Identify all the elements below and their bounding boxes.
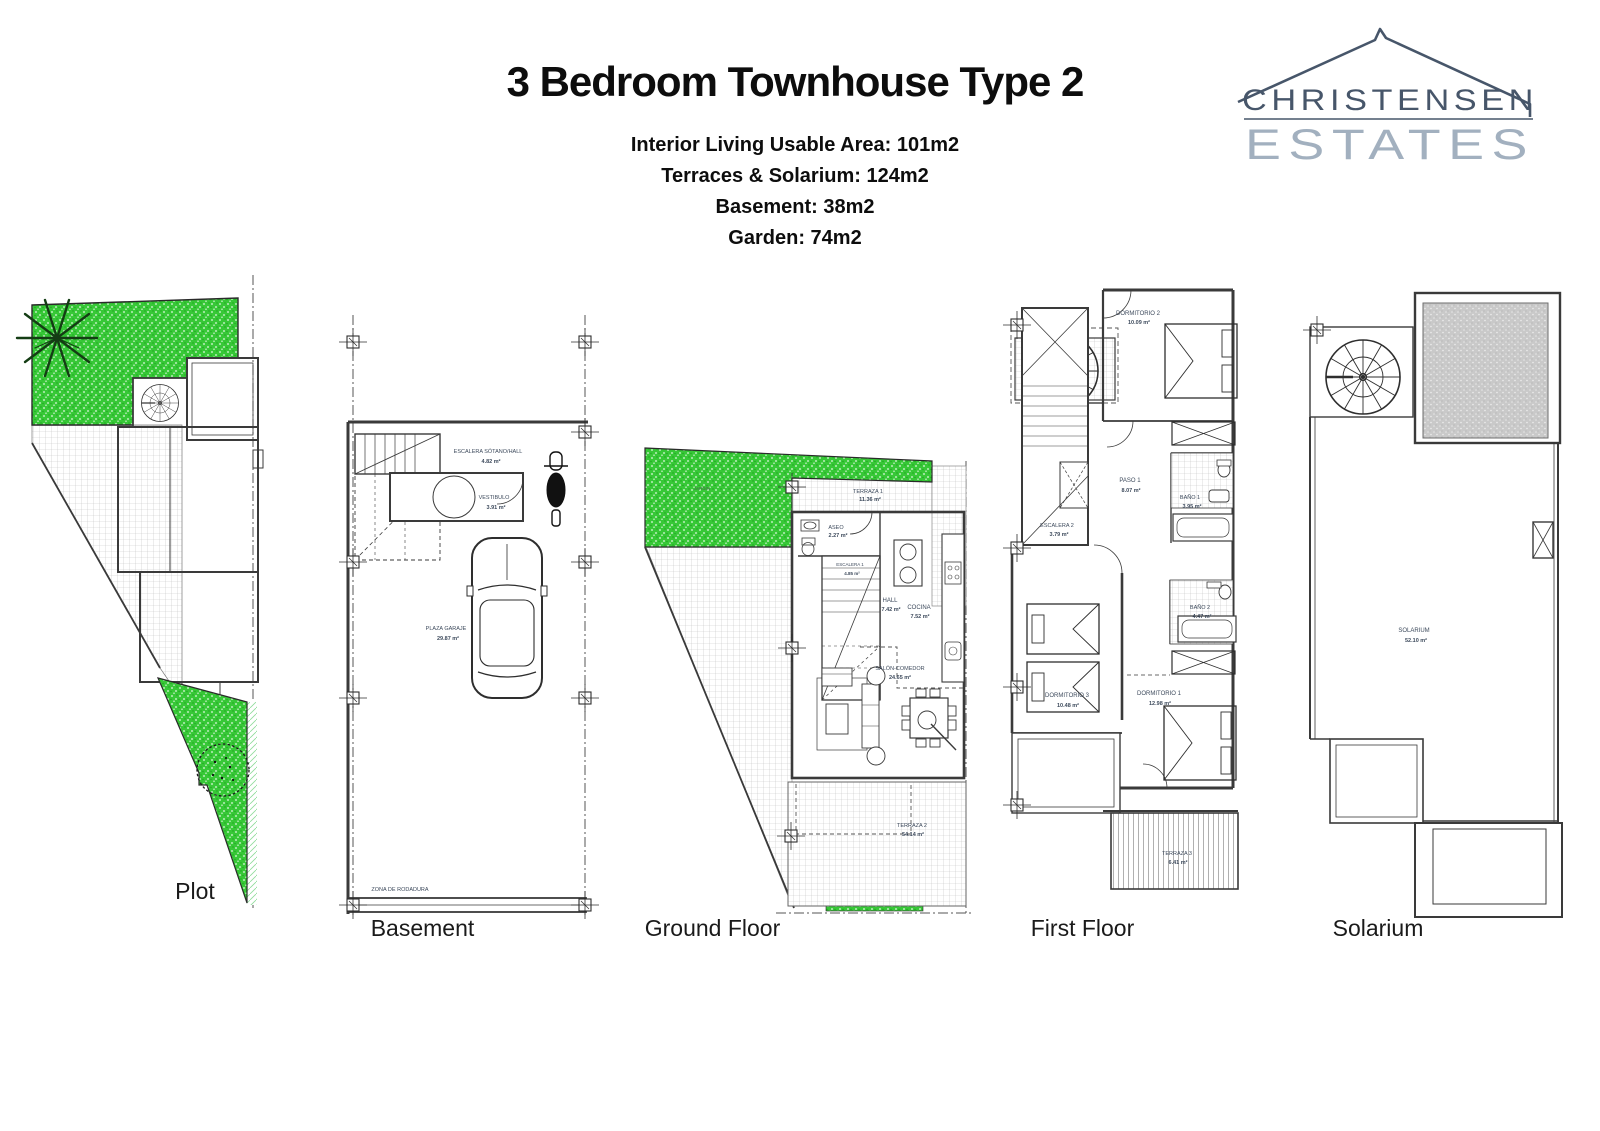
svg-text:SALÓN-COMEDOR: SALÓN-COMEDOR [875, 665, 924, 672]
stat-garden: Garden: 74m2 [400, 223, 1190, 254]
plot-patio [32, 425, 182, 700]
first-floor-plan: DORMITORIO 2 10.09 m² PASO 1 8.07 m² BAÑ… [981, 276, 1249, 896]
stat-basement: Basement: 38m2 [400, 192, 1190, 223]
svg-text:VESTIBULO: VESTIBULO [479, 495, 511, 501]
svg-text:DORMITORIO 1: DORMITORIO 1 [1137, 691, 1182, 697]
svg-text:DORMITORIO 2: DORMITORIO 2 [1116, 311, 1161, 317]
solarium-room-labels: SOLARIUM 52.10 m² [1398, 628, 1429, 644]
svg-text:SOLARIUM: SOLARIUM [1398, 628, 1429, 634]
window-symbol [1533, 522, 1553, 558]
svg-text:ZONA DE RODADURA: ZONA DE RODADURA [371, 887, 428, 893]
svg-text:JARDÍN: JARDÍN [694, 485, 710, 491]
solarium-walls [1310, 293, 1562, 917]
closet-2 [1172, 651, 1235, 674]
caption-basement: Basement [320, 915, 525, 942]
terraza1-area [792, 478, 932, 512]
page-title: 3 Bedroom Townhouse Type 2 [400, 58, 1190, 106]
spiral-stair-icon [1326, 340, 1400, 414]
solarium-plan: SOLARIUM 52.10 m² [1276, 280, 1578, 925]
svg-text:2.27 m²: 2.27 m² [829, 532, 848, 539]
aseo-fixtures [801, 520, 819, 556]
logo-wordmark-bottom: ESTATES [1245, 121, 1535, 165]
svg-text:54.14 m²: 54.14 m² [902, 831, 924, 838]
terraza2-area [788, 782, 966, 906]
svg-text:8.07 m²: 8.07 m² [1122, 487, 1141, 494]
svg-text:ESCALERA 1: ESCALERA 1 [836, 562, 864, 567]
bed-dormitorio1 [1164, 706, 1236, 780]
bano2-fixtures [1170, 580, 1236, 644]
pergola-area [1423, 303, 1548, 438]
svg-text:52.10 m²: 52.10 m² [1405, 637, 1427, 644]
caption-plot: Plot [130, 878, 260, 905]
svg-text:BAÑO 2: BAÑO 2 [1190, 604, 1210, 611]
svg-text:BAÑO 1: BAÑO 1 [1180, 494, 1200, 501]
plot-garden-lower [158, 678, 247, 903]
svg-text:ESCALERA 2: ESCALERA 2 [1040, 523, 1074, 529]
car-icon [467, 538, 547, 698]
svg-text:TERRAZA 2: TERRAZA 2 [897, 823, 927, 829]
svg-text:6.41 m²: 6.41 m² [1169, 859, 1188, 866]
svg-text:3.95 m²: 3.95 m² [1183, 503, 1202, 510]
first-stair [1022, 308, 1088, 545]
motorcycle-icon [544, 452, 568, 526]
svg-text:PASO 1: PASO 1 [1119, 478, 1141, 484]
plot-green-strip [247, 702, 257, 905]
area-stats: Interior Living Usable Area: 101m2 Terra… [400, 130, 1190, 254]
basement-plan: ESCALERA SÓTANO/HALL 4.82 m² VESTIBULO 3… [328, 270, 623, 925]
svg-text:3.79 m²: 3.79 m² [1050, 531, 1069, 538]
svg-text:TERRAZA 1: TERRAZA 1 [853, 489, 883, 495]
column-markers [339, 328, 599, 919]
christensen-estates-logo: CHRISTENSEN ESTATES [1230, 20, 1560, 165]
svg-text:11.36 m²: 11.36 m² [859, 496, 881, 503]
svg-text:4.85 m²: 4.85 m² [844, 571, 860, 576]
svg-text:7.52 m²: 7.52 m² [911, 613, 930, 620]
floorplan-sheet: 3 Bedroom Townhouse Type 2 Interior Livi… [0, 0, 1600, 1131]
svg-text:10.48 m²: 10.48 m² [1057, 702, 1079, 709]
svg-text:ESCALERA SÓTANO/HALL: ESCALERA SÓTANO/HALL [454, 448, 523, 455]
dining-set [902, 689, 956, 750]
svg-text:3.91 m²: 3.91 m² [487, 504, 506, 511]
bed-single-1 [1027, 604, 1099, 654]
svg-text:29.87 m²: 29.87 m² [437, 635, 459, 642]
svg-text:7.42 m²: 7.42 m² [882, 606, 901, 613]
svg-text:4.47 m²: 4.47 m² [1193, 613, 1212, 620]
entry-door-arc [850, 512, 872, 534]
spiral-stair-icon [142, 385, 179, 422]
svg-text:COCINA: COCINA [907, 605, 930, 611]
logo-wordmark-top: CHRISTENSEN [1242, 84, 1538, 117]
closet-1 [1172, 422, 1235, 445]
svg-text:ASEO: ASEO [828, 525, 844, 531]
svg-text:24.65 m²: 24.65 m² [889, 674, 911, 681]
caption-ground-floor: Ground Floor [600, 915, 825, 942]
caption-first-floor: First Floor [975, 915, 1190, 942]
svg-text:DORMITORIO 3: DORMITORIO 3 [1045, 693, 1090, 699]
caption-solarium: Solarium [1278, 915, 1478, 942]
basement-grid-lines [353, 315, 585, 915]
svg-text:12.98 m²: 12.98 m² [1149, 700, 1171, 707]
stat-interior: Interior Living Usable Area: 101m2 [400, 130, 1190, 161]
sofa-set [817, 667, 885, 765]
svg-text:4.82 m²: 4.82 m² [482, 458, 501, 465]
first-balcony-box [1012, 733, 1120, 813]
svg-text:HALL: HALL [882, 598, 898, 604]
stat-terraces: Terraces & Solarium: 124m2 [400, 161, 1190, 192]
ground-floor-plan: TERRAZA 1 11.36 m² JARDÍN ASEO 2.27 m² E… [626, 416, 974, 921]
bed-dormitorio2 [1165, 324, 1237, 398]
svg-text:TERRAZA 3: TERRAZA 3 [1162, 851, 1192, 857]
svg-text:PLAZA GARAJE: PLAZA GARAJE [426, 626, 467, 632]
svg-text:10.09 m²: 10.09 m² [1128, 319, 1150, 326]
plot-plan [10, 270, 272, 915]
